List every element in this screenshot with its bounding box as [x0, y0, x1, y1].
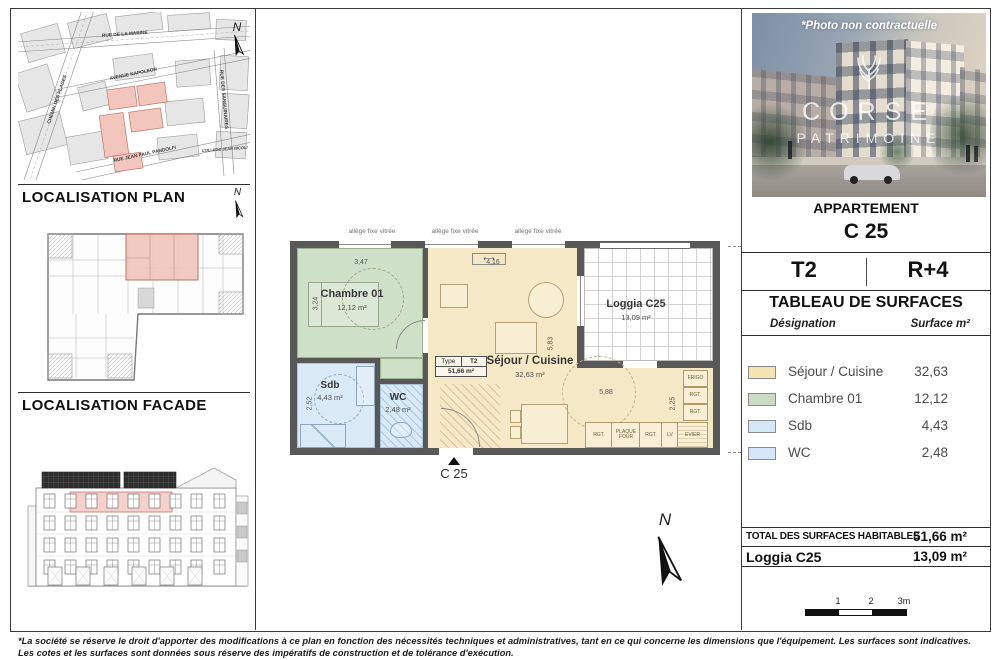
shower [300, 424, 346, 448]
allege-label: allège fixe vitrée [330, 228, 414, 235]
room-area-wc: 2,48 m² [358, 405, 438, 414]
divider [741, 546, 990, 547]
sofa [495, 322, 537, 354]
legend-label: Sdb [788, 418, 812, 433]
legend-swatch [748, 366, 776, 379]
window [337, 241, 393, 248]
unit-marker: C 25 [424, 466, 484, 481]
divider [741, 252, 990, 253]
dim-label: 4,16 [471, 259, 515, 266]
dim-label: 2,52 [307, 389, 314, 419]
room-area-chambre: 12,12 m² [292, 303, 412, 312]
window [510, 241, 567, 248]
legend-value: 2,48 [848, 445, 948, 460]
kitchen-evier: EVIER [677, 422, 708, 448]
column-surface: Surface m² [860, 318, 970, 330]
column-divider-left [255, 8, 256, 630]
neighbor-dash [728, 246, 741, 247]
scale-tick: 3m [894, 596, 914, 606]
disclaimer-line-1: *La société se réserve le droit d'apport… [18, 636, 986, 646]
loggia-opening [623, 361, 657, 368]
car-wheel [850, 176, 858, 184]
kitchen-frigo: FRIGO [683, 370, 708, 387]
legend-label: WC [788, 445, 811, 460]
kitchen-plaque-four: PLAQUE FOUR [611, 422, 641, 448]
wall [290, 448, 720, 455]
total-value: 51,66 m² [870, 529, 967, 544]
brand-name-top: CORSE [752, 98, 986, 127]
floor-overview-plan [18, 218, 250, 386]
legend-swatch [748, 447, 776, 460]
kitchen-rgt: RGT. [683, 387, 708, 404]
entrance-opening [439, 448, 473, 455]
chair [510, 426, 521, 439]
column-designation: Désignation [770, 318, 836, 330]
allege-label: allège fixe vitrée [496, 228, 580, 235]
room-chambre-nook [380, 358, 423, 379]
kitchen-rgt: RGT. [683, 404, 708, 421]
divider [741, 566, 990, 567]
column-divider-right [741, 8, 742, 630]
room-label-wc: WC [358, 392, 438, 404]
loggia-total-value: 13,09 m² [870, 549, 967, 564]
location-map: RUE DE LA MARINE AVENUE NAPOLEON RUE JEA… [18, 12, 250, 182]
plan-sheet: RUE DE LA MARINE AVENUE NAPOLEON RUE JEA… [0, 0, 1000, 660]
kitchen-rgt: RGT. [639, 422, 663, 448]
wall [290, 241, 297, 455]
round-table [528, 282, 564, 318]
table-title: TABLEAU DE SURFACES [742, 294, 990, 312]
kitchen-rgt: RGT. [585, 422, 613, 448]
scale-segment [873, 609, 907, 616]
allege-label: allège fixe vitrée [413, 228, 497, 235]
unit-type: T2 [742, 257, 866, 283]
room-area-loggia: 13,09 m² [576, 313, 696, 322]
wall [423, 248, 428, 318]
legend-swatch [748, 420, 776, 433]
wall [297, 358, 380, 363]
disclaimer-line-2: Les cotes et les surfaces sont données s… [18, 648, 986, 658]
scale-tick: 2 [865, 596, 877, 606]
brand-name-bottom: PATRIMOINE [752, 130, 986, 146]
dim-label: 5,83 [548, 329, 555, 359]
scale-segment [838, 609, 873, 616]
localisation-plan-title: LOCALISATION PLAN [22, 189, 185, 206]
type-box-type: T2 [461, 357, 487, 366]
dim-label: 3,24 [313, 289, 320, 319]
dim-label: 2,25 [670, 389, 677, 419]
loggia-total-label: Loggia C25 [746, 549, 821, 565]
dim-label: 5,88 [584, 389, 628, 396]
apartment-floor-plan: allège fixe vitrée allège fixe vitrée al… [290, 226, 726, 478]
toilet [390, 422, 412, 438]
unit-number: C 25 [742, 220, 990, 244]
divider [741, 527, 990, 528]
armchair [440, 284, 468, 308]
localisation-facade-title: LOCALISATION FACADE [22, 397, 207, 414]
facade-elevation [18, 446, 250, 614]
north-arrow-icon: N [648, 512, 682, 592]
neighbor-dash [728, 452, 741, 453]
divider [741, 290, 990, 291]
entrance-marker-icon [448, 457, 460, 465]
type-box-label: Type [436, 357, 461, 366]
car-wheel [884, 176, 892, 184]
divider [741, 335, 990, 336]
divider [18, 392, 250, 393]
type-box: Type T2 51,66 m² [435, 356, 487, 377]
room-label-chambre: Chambre 01 [292, 288, 412, 300]
photo-caption: *Photo non contractuelle [752, 20, 986, 32]
type-box-area: 51,66 m² [436, 367, 486, 376]
divider [18, 184, 250, 185]
wall [713, 241, 720, 455]
dim-label: 3,47 [339, 259, 383, 266]
scale-tick: 1 [832, 596, 844, 606]
tree-logo-icon [847, 51, 891, 91]
window [423, 241, 480, 248]
room-label-loggia: Loggia C25 [576, 298, 696, 310]
legend-value: 4,43 [848, 418, 948, 433]
pedestrian [974, 146, 978, 162]
unit-floor: R+4 [866, 257, 990, 283]
building-photo: *Photo non contractuelle CORSE PATRIMOIN… [752, 13, 986, 197]
pedestrian [966, 145, 970, 162]
brand-watermark: CORSE PATRIMOINE [752, 51, 986, 146]
room-label-sdb: Sdb [290, 380, 370, 392]
north-arrow-icon: N [229, 22, 245, 58]
panel-header: APPARTEMENT [742, 200, 990, 216]
dining-table [521, 404, 568, 444]
scale-segment [805, 609, 838, 616]
room-area-sejour: 32,63 m² [480, 370, 580, 379]
chair [510, 410, 521, 423]
legend-value: 32,63 [848, 364, 948, 379]
north-arrow-icon: N [231, 188, 244, 220]
loggia-railing [600, 242, 690, 249]
legend-value: 12,12 [848, 391, 948, 406]
wall [380, 379, 428, 384]
legend-swatch [748, 393, 776, 406]
